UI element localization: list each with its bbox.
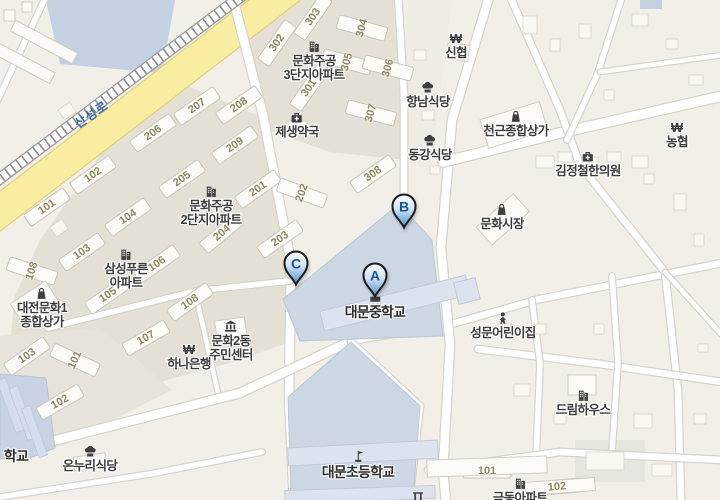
building-number: 206: [142, 123, 164, 143]
gate-icon: [412, 489, 425, 500]
child-icon: [470, 312, 535, 326]
seongmun-daycare: 성문어린이집: [470, 312, 535, 341]
building-number: 108: [179, 292, 201, 312]
building-number: 209: [224, 135, 246, 155]
poi-label: 성문어린이집: [470, 327, 535, 341]
map-pin-B[interactable]: B: [389, 191, 419, 231]
poi-label: 문화주공: [181, 200, 242, 214]
poi-label: 농협: [666, 136, 688, 150]
building-number: 102: [82, 165, 104, 185]
poi-label: 금동아파트: [493, 492, 548, 500]
kimjeongcheol-clinic: 김정철한의원: [555, 150, 620, 179]
poi-label: 드림하우스: [556, 404, 611, 418]
building-number: 102: [49, 392, 71, 412]
gate: [412, 489, 425, 500]
building-number: 306: [380, 58, 396, 79]
building-icon: [181, 185, 242, 199]
building-number: 101: [66, 349, 85, 371]
shopping-bag-icon: [483, 110, 548, 124]
partial-school-label: 학교: [4, 449, 28, 464]
samsung-pureun-apartment: 삼성푸른아파트: [104, 248, 148, 290]
chef-hat-icon: [408, 134, 452, 148]
building-icon: [556, 389, 611, 403]
daemun-elementary-school: 대문초등학교: [322, 450, 394, 480]
shopping-bag-icon: [480, 203, 524, 217]
cheongeun-shopping-center: 천근종합상가: [483, 110, 548, 139]
map-pin-letter: A: [370, 268, 380, 284]
poi-label: 주민센터: [209, 349, 253, 363]
poi-label: 문화주공: [284, 55, 345, 69]
building-number: 304: [354, 18, 370, 39]
poi-label: 천근종합상가: [483, 125, 548, 139]
map-pin-C[interactable]: C: [281, 248, 311, 288]
chef-hat-icon: [406, 81, 450, 95]
building-number: 203: [269, 229, 291, 249]
poi-label: 하나은행: [167, 358, 211, 372]
building-number: 101: [36, 197, 58, 217]
government-building-icon: [209, 320, 253, 334]
won-bank-icon: ₩: [445, 32, 467, 46]
building-number: 106: [146, 254, 168, 274]
jesaeng-pharmacy: 제생약국: [275, 111, 319, 140]
building-number: 103: [16, 346, 38, 366]
poi-label: 동강식당: [408, 149, 452, 163]
dream-house: 드림하우스: [556, 389, 611, 418]
munhwa-market: 문화시장: [480, 203, 524, 232]
hana-bank: ₩하나은행: [167, 343, 211, 372]
chef-hat-icon: [63, 445, 118, 459]
hyangnam-restaurant: 향남식당: [406, 81, 450, 110]
poi-label: 문화2동: [209, 335, 253, 349]
munhwa-jugong-3danji-apartment: 문화주공3단지아파트: [284, 40, 345, 82]
map-canvas[interactable]: 산성로 문화주공3단지아파트제생약국₩신협향남식당동강식당천근종합상가₩농협김정…: [0, 0, 720, 500]
building-icon: [104, 248, 148, 262]
map-pin-letter: C: [291, 256, 301, 272]
daejeon-munhwa1-shopping-center: 대전문화1종합상가: [17, 287, 67, 329]
building-number: 104: [117, 207, 139, 227]
building-number: 307: [363, 103, 379, 124]
building-number: 208: [228, 95, 250, 115]
poi-label: 2단지아파트: [181, 214, 242, 228]
building-number: 202: [293, 182, 311, 203]
onnuri-restaurant: 온누리식당: [63, 445, 118, 474]
road-name-sanseongno: 산성로: [70, 95, 112, 132]
poi-label: 대문중학교: [345, 305, 405, 320]
poi-label: 삼성푸른: [104, 263, 148, 277]
medical-cross-icon: [555, 150, 620, 164]
building-number: 201: [247, 179, 269, 199]
poi-label: 대전문화1: [17, 302, 67, 316]
school-flag-icon: [322, 450, 394, 464]
building-number: 207: [186, 96, 208, 116]
sinhyeop-credit-union: ₩신협: [445, 32, 467, 61]
donggang-restaurant: 동강식당: [408, 134, 452, 163]
building-number: 102: [547, 480, 566, 494]
shopping-bag-icon: [17, 287, 67, 301]
won-bank-icon: ₩: [666, 121, 688, 135]
poi-label: 학교: [4, 449, 28, 464]
building-number: 107: [135, 328, 157, 348]
poi-label: 종합상가: [17, 316, 67, 330]
poi-label: 대문초등학교: [322, 465, 394, 480]
building-number: 308: [362, 164, 384, 184]
poi-label: 제생약국: [275, 126, 319, 140]
building-icon: [493, 477, 548, 491]
poi-label: 김정철한의원: [555, 165, 620, 179]
poi-label: 온누리식당: [63, 460, 118, 474]
building-number: 101: [478, 465, 496, 477]
nonghyup-bank: ₩농협: [666, 121, 688, 150]
poi-label: 신협: [445, 47, 467, 61]
building-icon: [284, 40, 345, 54]
building-number: 103: [71, 242, 93, 262]
building-number: 108: [23, 260, 40, 281]
building-number: 303: [303, 6, 323, 28]
munhwa-jugong-2danji-apartment: 문화주공2단지아파트: [181, 185, 242, 227]
map-pin-A[interactable]: A: [360, 260, 390, 300]
poi-label: 향남식당: [406, 96, 450, 110]
won-bank-icon: ₩: [167, 343, 211, 357]
poi-label: 문화시장: [480, 218, 524, 232]
geumdong-apartment: 금동아파트: [493, 477, 548, 500]
map-pin-letter: B: [399, 199, 409, 215]
medical-cross-icon: [275, 111, 319, 125]
munhwa-2dong-community-center: 문화2동주민센터: [209, 320, 253, 362]
map-labels: 산성로 문화주공3단지아파트제생약국₩신협향남식당동강식당천근종합상가₩농협김정…: [0, 0, 720, 500]
